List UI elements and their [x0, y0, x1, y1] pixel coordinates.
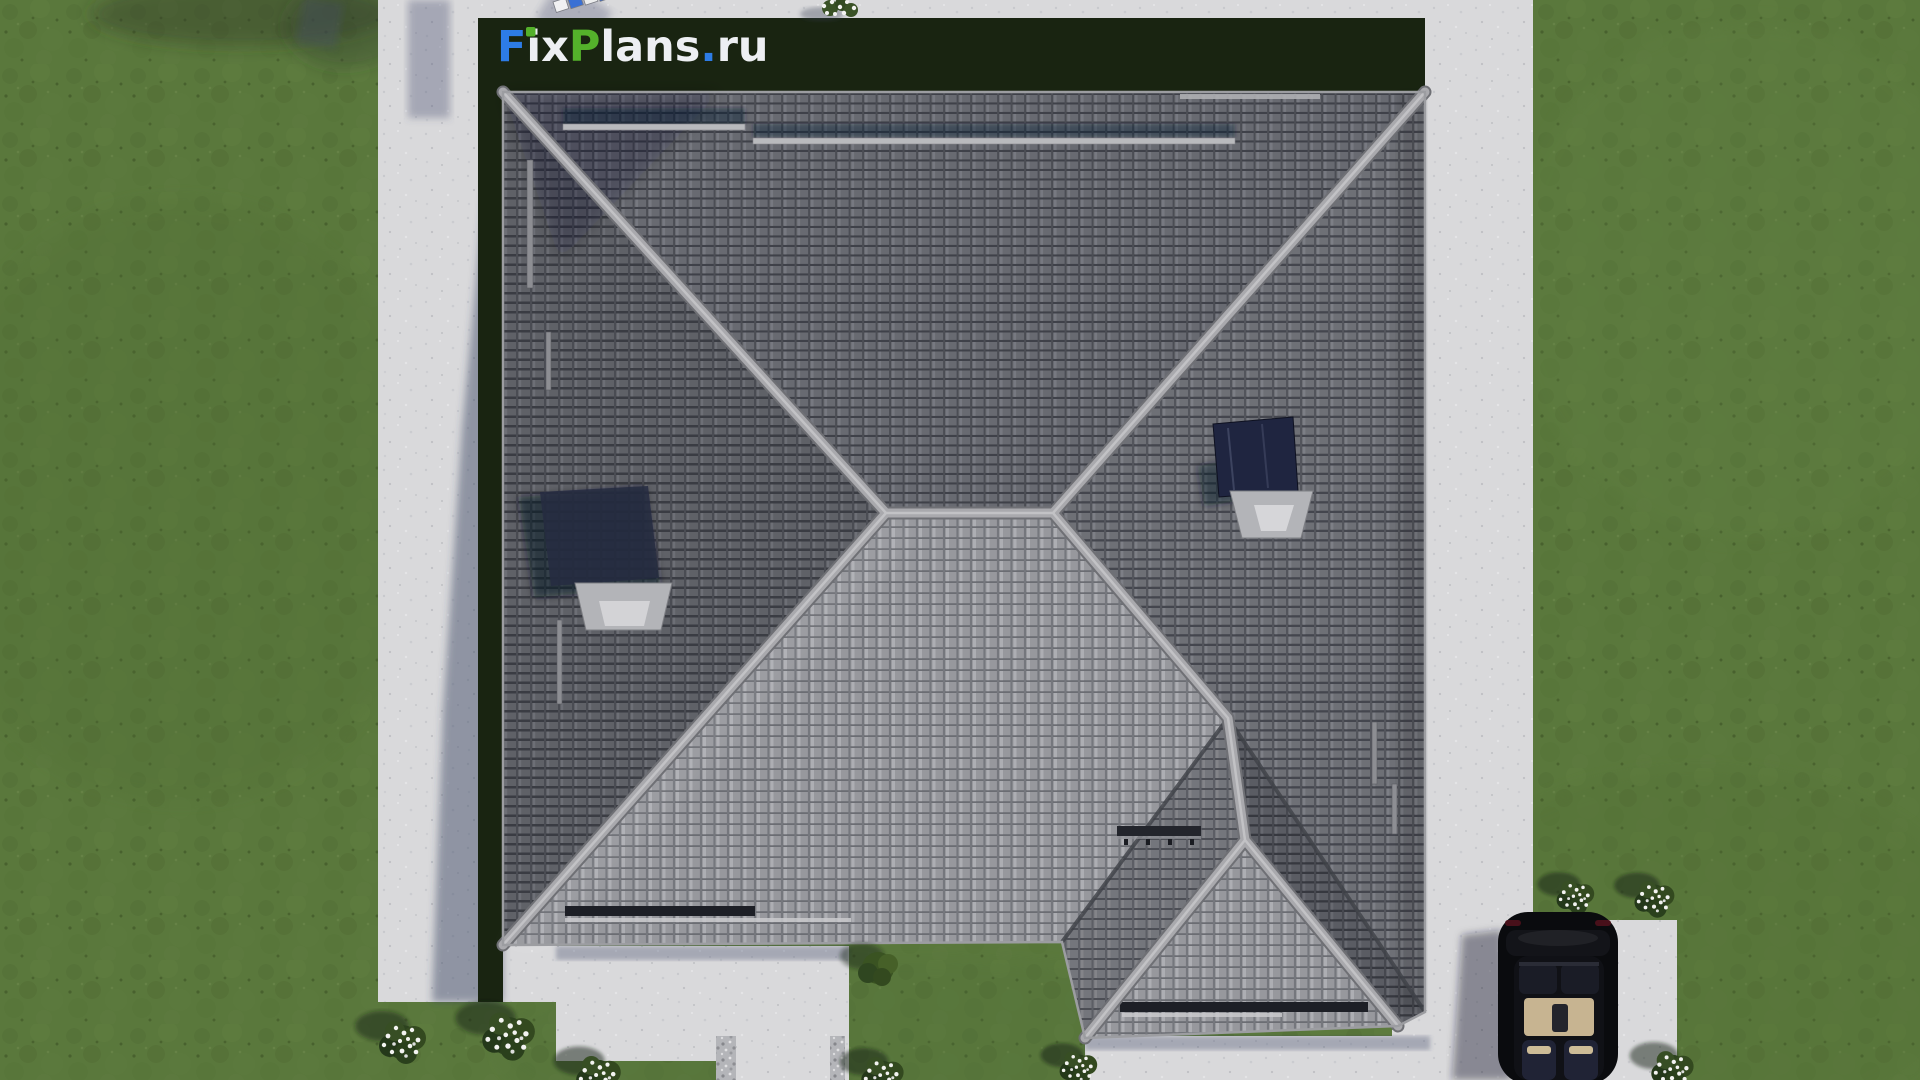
main-roof — [503, 92, 1425, 1038]
snow-guard-rail — [753, 138, 1235, 144]
fixplans-watermark: FixPlans.ru — [497, 22, 769, 72]
skylight-glass — [1213, 417, 1298, 497]
watermark-text: FixPlans.ru — [497, 22, 769, 72]
snow-guard-rail — [563, 124, 745, 130]
render-scene: FixPlans.ru — [0, 0, 1920, 1080]
snow-guard-rail — [1120, 1002, 1368, 1012]
car-tail-light — [1595, 920, 1611, 926]
watermark-i-dot — [526, 27, 536, 37]
snow-guard-rail — [565, 906, 755, 916]
gravel-border-left — [716, 1036, 736, 1080]
convertible-car — [1498, 912, 1618, 1080]
car-tail-light — [1505, 920, 1521, 926]
tree-shadow-on-path — [408, 0, 450, 118]
scene-canvas: FixPlans.ru — [0, 0, 1920, 1080]
skylight-glass — [540, 486, 659, 586]
eave-fascia — [1180, 94, 1320, 99]
